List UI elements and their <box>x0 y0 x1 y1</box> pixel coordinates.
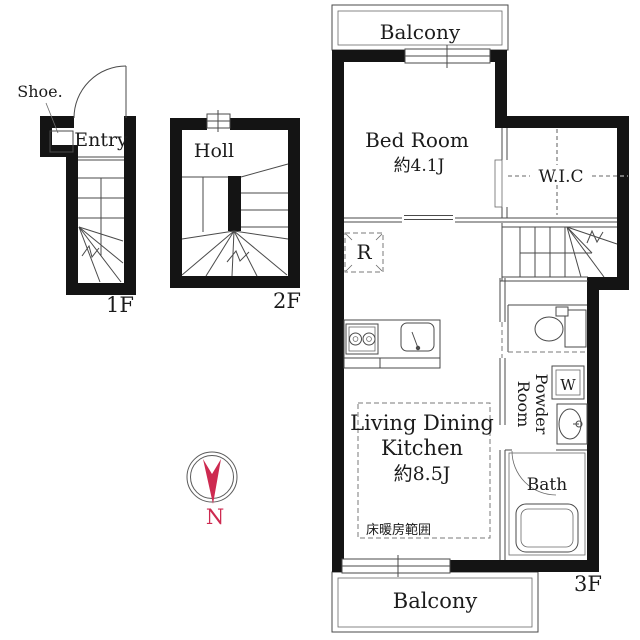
wic-label: W.I.C <box>538 167 583 187</box>
refrigerator-space: R <box>345 233 383 272</box>
entry-step-lines <box>78 157 124 160</box>
bedroom-size-label: 約4.1J <box>394 156 445 176</box>
floor1-label: 1F <box>106 293 134 317</box>
toilet-room <box>500 281 588 352</box>
powder-room-label-line2: Room <box>514 381 533 427</box>
floor3-label: 3F <box>574 572 602 596</box>
ldk-size-label: 約8.5J <box>394 463 451 485</box>
window-ldk-balcony <box>342 555 450 577</box>
window-2f <box>207 110 230 132</box>
stairs-1f <box>78 178 124 282</box>
stair-break-mark-2f <box>227 251 249 262</box>
bedroom-label: Bed Room <box>365 128 469 152</box>
compass: N <box>187 452 237 529</box>
balcony-bottom-label: Balcony <box>393 589 478 613</box>
refrigerator-label: R <box>356 240 372 264</box>
floor2-label: 2F <box>273 289 301 313</box>
stair-break-mark-3f <box>587 231 603 243</box>
bath-label: Bath <box>527 475 567 495</box>
floor-plan-page: Shoe. Entry 1F <box>0 0 640 640</box>
ldk-label-line1: Living Dining <box>350 411 494 435</box>
floor-plan-canvas: Shoe. Entry 1F <box>0 0 640 640</box>
entry-label: Entry <box>74 129 128 151</box>
shoe-label: Shoe. <box>17 82 62 101</box>
washer-space: W <box>552 366 584 399</box>
compass-north-label: N <box>206 505 224 529</box>
bedroom-partition-wall <box>344 213 617 225</box>
stove <box>346 324 378 354</box>
floor-3f-plan: W.I.C R <box>332 5 629 632</box>
toilet-fixture <box>535 307 586 347</box>
kitchen-counter <box>344 320 440 368</box>
ldk-label-line2: Kitchen <box>381 436 463 460</box>
wic-door-leaf <box>495 160 502 207</box>
hall-label: Holl <box>194 140 234 162</box>
floor-heating-label: 床暖房範囲 <box>366 522 431 538</box>
floor-1f-plan: Shoe. Entry 1F <box>17 66 136 317</box>
stair-break-mark-1f <box>82 246 99 257</box>
powder-room: Powder Room W <box>514 366 587 444</box>
wash-basin <box>557 404 587 444</box>
kitchen-sink <box>401 323 434 351</box>
washer-label: W <box>560 376 576 394</box>
wic-room: W.I.C <box>495 128 628 218</box>
stairs-3f <box>502 223 617 281</box>
bath-room: Bath <box>505 450 587 555</box>
window-bedroom-balcony <box>405 45 490 68</box>
floor-2f-plan: Holl 2F <box>170 110 301 313</box>
stair-core-wall <box>228 176 241 231</box>
ldk-powder-divider-wall <box>500 278 505 560</box>
powder-room-label-line1: Powder <box>532 374 551 435</box>
balcony-top-label: Balcony <box>380 20 461 44</box>
bathtub <box>516 504 578 552</box>
entry-door-swing <box>74 66 126 118</box>
